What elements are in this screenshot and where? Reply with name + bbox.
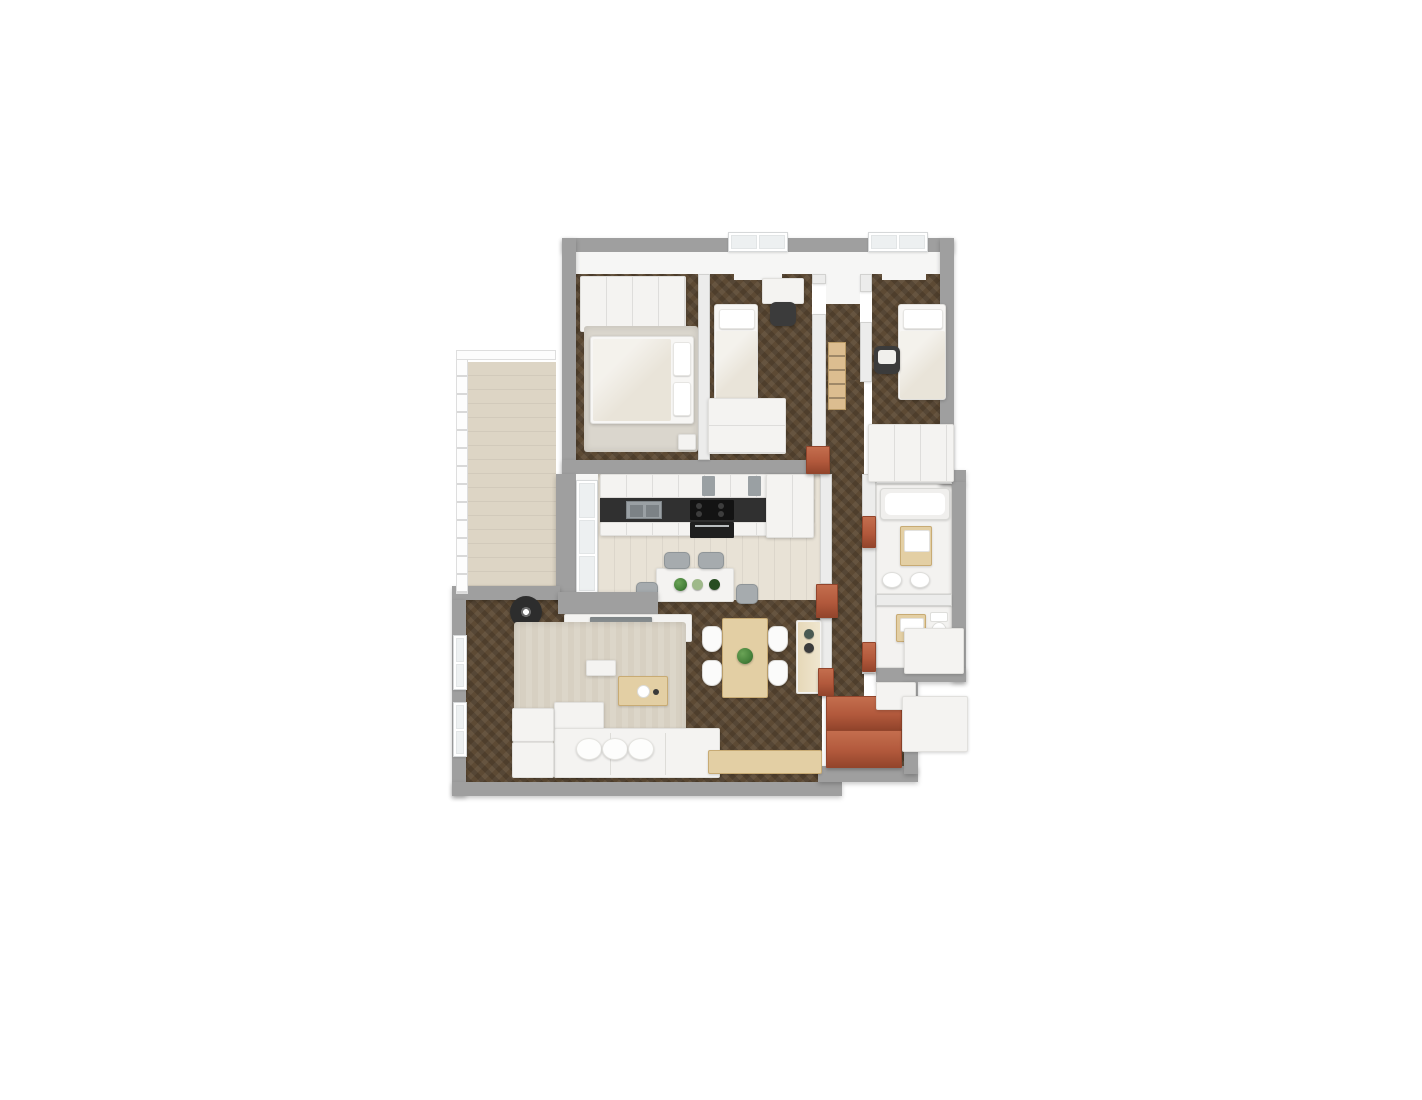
tv-partition-wall [558,592,658,614]
entry-storage-block [902,696,968,752]
wall-entry-bottom [818,766,918,782]
kitchen-tall-units [766,474,814,538]
vase [637,685,650,698]
bathroom-vanity [900,526,932,566]
bedroom-3-radiator [882,274,926,280]
mug [653,689,659,695]
wall-hall-bedroom3-b [860,322,872,382]
burner [696,511,702,517]
bathroom-toilet [882,572,902,588]
balcony-railing [456,358,468,594]
bedroom-3-wardrobe [868,424,954,482]
coffee-table [618,676,668,706]
island-plant-light [692,579,703,590]
window-pane [456,705,464,729]
wall-kitchen-hall-a [820,474,832,584]
bedroom-3-duvet [900,331,945,399]
burner [718,511,724,517]
dining-chair [768,660,788,686]
wall-left-bedrooms [562,238,576,474]
toilet-tank [930,612,948,622]
burner [696,503,702,509]
balcony-glass-door [576,480,598,594]
dining-table-plant [737,648,753,664]
terracotta-frame [818,668,834,696]
dining-chair [702,660,722,686]
window-pane [456,664,464,688]
vanity-sink [904,530,930,552]
dining-chair [702,626,722,652]
tray-stool [586,660,616,676]
master-pillow [673,342,691,376]
kitchen-hood-panel [702,476,715,496]
wall-balcony-side [556,474,576,600]
bedroom-3-pillow [903,309,943,329]
balcony-railing-top [456,350,556,360]
window-pane [456,731,464,755]
kitchen-hood-panel [748,476,761,496]
bedroom-2-desk [762,278,804,304]
entry-closet-terracotta [826,730,902,768]
bathtub [880,488,950,520]
dining-wall-bench [708,750,822,774]
window-pane [579,520,595,555]
dining-chair [768,626,788,652]
wall-top-inner-face [576,252,952,274]
wall-hall-bedroom3-a [860,274,872,292]
island-plant-dark [709,579,720,590]
master-pillow [673,382,691,416]
window-pane [579,483,595,518]
wall-living-topleft [452,586,560,600]
wall-bath-wc-divider [876,594,952,606]
wall-living-left [452,600,466,796]
hall-wood-shelf [828,342,846,410]
oven-handle [695,525,729,527]
living-window-1 [453,635,467,690]
sofa-seam [665,733,666,775]
hall-top-landing [826,274,860,304]
terracotta-frame [862,642,876,672]
chair-seat [878,350,896,364]
bedroom-2-window [728,232,788,252]
sink-basin [646,505,659,517]
washing-column [904,628,964,674]
balcony-floor [468,362,556,586]
window-pane [456,638,464,662]
wall-bottom [452,782,842,796]
master-double-bed [590,336,694,424]
sofa-cushion [576,738,602,760]
kitchen-oven [690,522,734,538]
island-plant [674,578,687,591]
window-pane [579,556,595,591]
bedroom-2-duvet [716,331,757,401]
bedroom-3-window [868,232,928,252]
sofa-cushion [628,738,654,760]
sink-basin [630,505,643,517]
dark-pot [804,643,814,653]
sofa-cushion [602,738,628,760]
page-background: { "scene": { "kind": "3d-floor-plan-rend… [0,0,1422,1100]
window-pane [731,235,757,249]
kitchen-cooktop [690,500,734,520]
ottoman [512,708,554,742]
kitchen-sink [626,501,662,519]
floor-plan-3d-render [452,230,997,810]
wall-bedroom2-hall-a [812,274,826,284]
wall-mid-horizontal [562,460,824,474]
terracotta-frame [862,516,876,548]
window-pane [899,235,925,249]
bar-chair [698,552,724,569]
window-pane [759,235,785,249]
living-window-2 [453,702,467,757]
bedroom-2-desk-chair [770,302,796,326]
wall-bedroom2-hall-b [812,314,826,460]
ottoman [512,742,554,778]
master-wardrobe [580,276,686,332]
dark-pot [804,629,814,639]
bathtub-basin [885,493,945,515]
bar-chair [664,552,690,569]
bedroom-3-single-bed [898,304,946,400]
burner [718,503,724,509]
window-pane [871,235,897,249]
master-duvet [593,339,671,421]
bedroom-2-pillow [719,309,755,329]
bathroom-bidet [910,572,930,588]
terracotta-frame [816,584,838,618]
terracotta-frame [806,446,830,474]
bedroom-2-dresser [708,398,786,454]
master-nightstand [678,434,696,450]
bedroom-2-single-bed [714,304,758,402]
bar-chair [736,584,758,604]
bedroom-3-desk-chair [874,346,900,374]
